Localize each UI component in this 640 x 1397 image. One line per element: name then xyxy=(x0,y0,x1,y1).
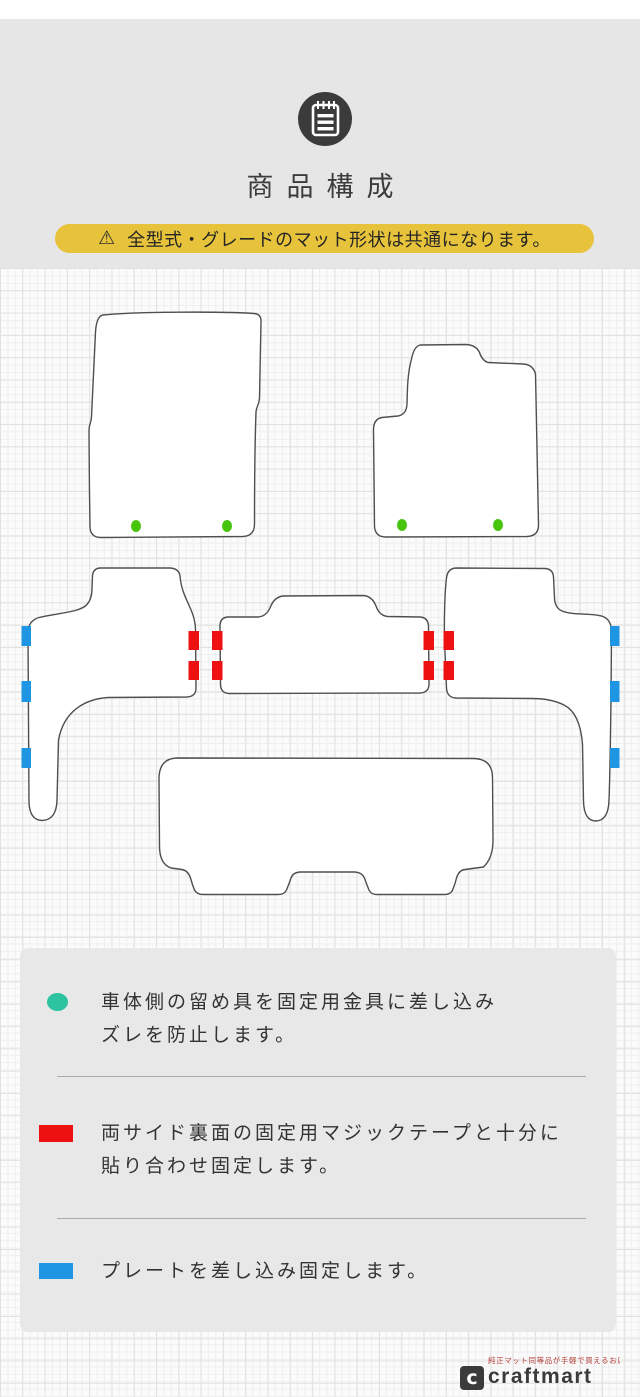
legend-item-red-velcro: 両サイド裏面の固定用マジックテープと十分に 貼り合わせ固定します。 xyxy=(20,1117,616,1207)
red-tab xyxy=(444,661,455,680)
legend-line: プレートを差し込み固定します。 xyxy=(101,1255,601,1288)
red-tab xyxy=(424,631,435,650)
top-white-strip xyxy=(0,0,640,19)
front-driver-mat xyxy=(89,312,261,537)
red-tab xyxy=(444,631,455,650)
green-dot xyxy=(397,519,407,531)
green-dot xyxy=(131,520,141,532)
teal-dot-marker xyxy=(47,993,68,1011)
red-tab xyxy=(212,631,223,650)
red-rect-marker xyxy=(39,1125,73,1142)
legend-panel: 車体側の留め具を固定用金具に差し込み ズレを防止します。 両サイド裏面の固定用マ… xyxy=(20,948,616,1332)
blue-tab xyxy=(22,681,32,702)
blue-tab xyxy=(22,626,32,646)
craftmart-logo: c 純正マット同等品が手軽で買えるお店 craftmart xyxy=(460,1355,620,1391)
second-row-center-mat xyxy=(220,596,429,694)
red-tab xyxy=(189,661,200,680)
legend-divider xyxy=(57,1076,586,1077)
front-passenger-mat xyxy=(374,345,539,538)
legend-line: 貼り合わせ固定します。 xyxy=(101,1150,601,1183)
floor-mats-diagram xyxy=(0,268,640,928)
red-tab xyxy=(189,631,200,650)
blue-tab xyxy=(610,681,620,702)
legend-text: 両サイド裏面の固定用マジックテープと十分に 貼り合わせ固定します。 xyxy=(101,1117,601,1183)
notepad-icon xyxy=(298,92,352,146)
blue-tab xyxy=(610,748,620,768)
blue-tab xyxy=(610,626,620,646)
blue-tab xyxy=(22,748,32,768)
legend-line: 両サイド裏面の固定用マジックテープと十分に xyxy=(101,1117,601,1150)
craftmart-logo-icon: c xyxy=(460,1366,484,1390)
legend-item-blue-plate: プレートを差し込み固定します。 xyxy=(20,1255,616,1295)
red-tab xyxy=(424,661,435,680)
logo-wordmark: craftmart xyxy=(488,1364,620,1390)
blue-rect-marker xyxy=(39,1263,73,1279)
product-composition-section: 商品構成 ⚠ 全型式・グレードのマット形状は共通になります。 xyxy=(0,0,640,1397)
legend-divider xyxy=(57,1218,586,1219)
notice-text: 全型式・グレードのマット形状は共通になります。 xyxy=(127,226,551,252)
legend-line: ズレを防止します。 xyxy=(101,1019,601,1052)
page-title: 商品構成 xyxy=(0,165,640,204)
rear-luggage-mat xyxy=(159,758,493,895)
green-dot xyxy=(222,520,232,532)
notice-banner: ⚠ 全型式・グレードのマット形状は共通になります。 xyxy=(55,224,594,253)
red-tab xyxy=(212,661,223,680)
warning-icon: ⚠ xyxy=(98,229,115,248)
header: 商品構成 ⚠ 全型式・グレードのマット形状は共通になります。 xyxy=(0,19,640,268)
legend-line: 車体側の留め具を固定用金具に差し込み xyxy=(101,986,601,1019)
green-dot xyxy=(493,519,503,531)
legend-text: プレートを差し込み固定します。 xyxy=(101,1255,601,1288)
legend-item-green-hooks: 車体側の留め具を固定用金具に差し込み ズレを防止します。 xyxy=(20,986,616,1076)
legend-text: 車体側の留め具を固定用金具に差し込み ズレを防止します。 xyxy=(101,986,601,1052)
